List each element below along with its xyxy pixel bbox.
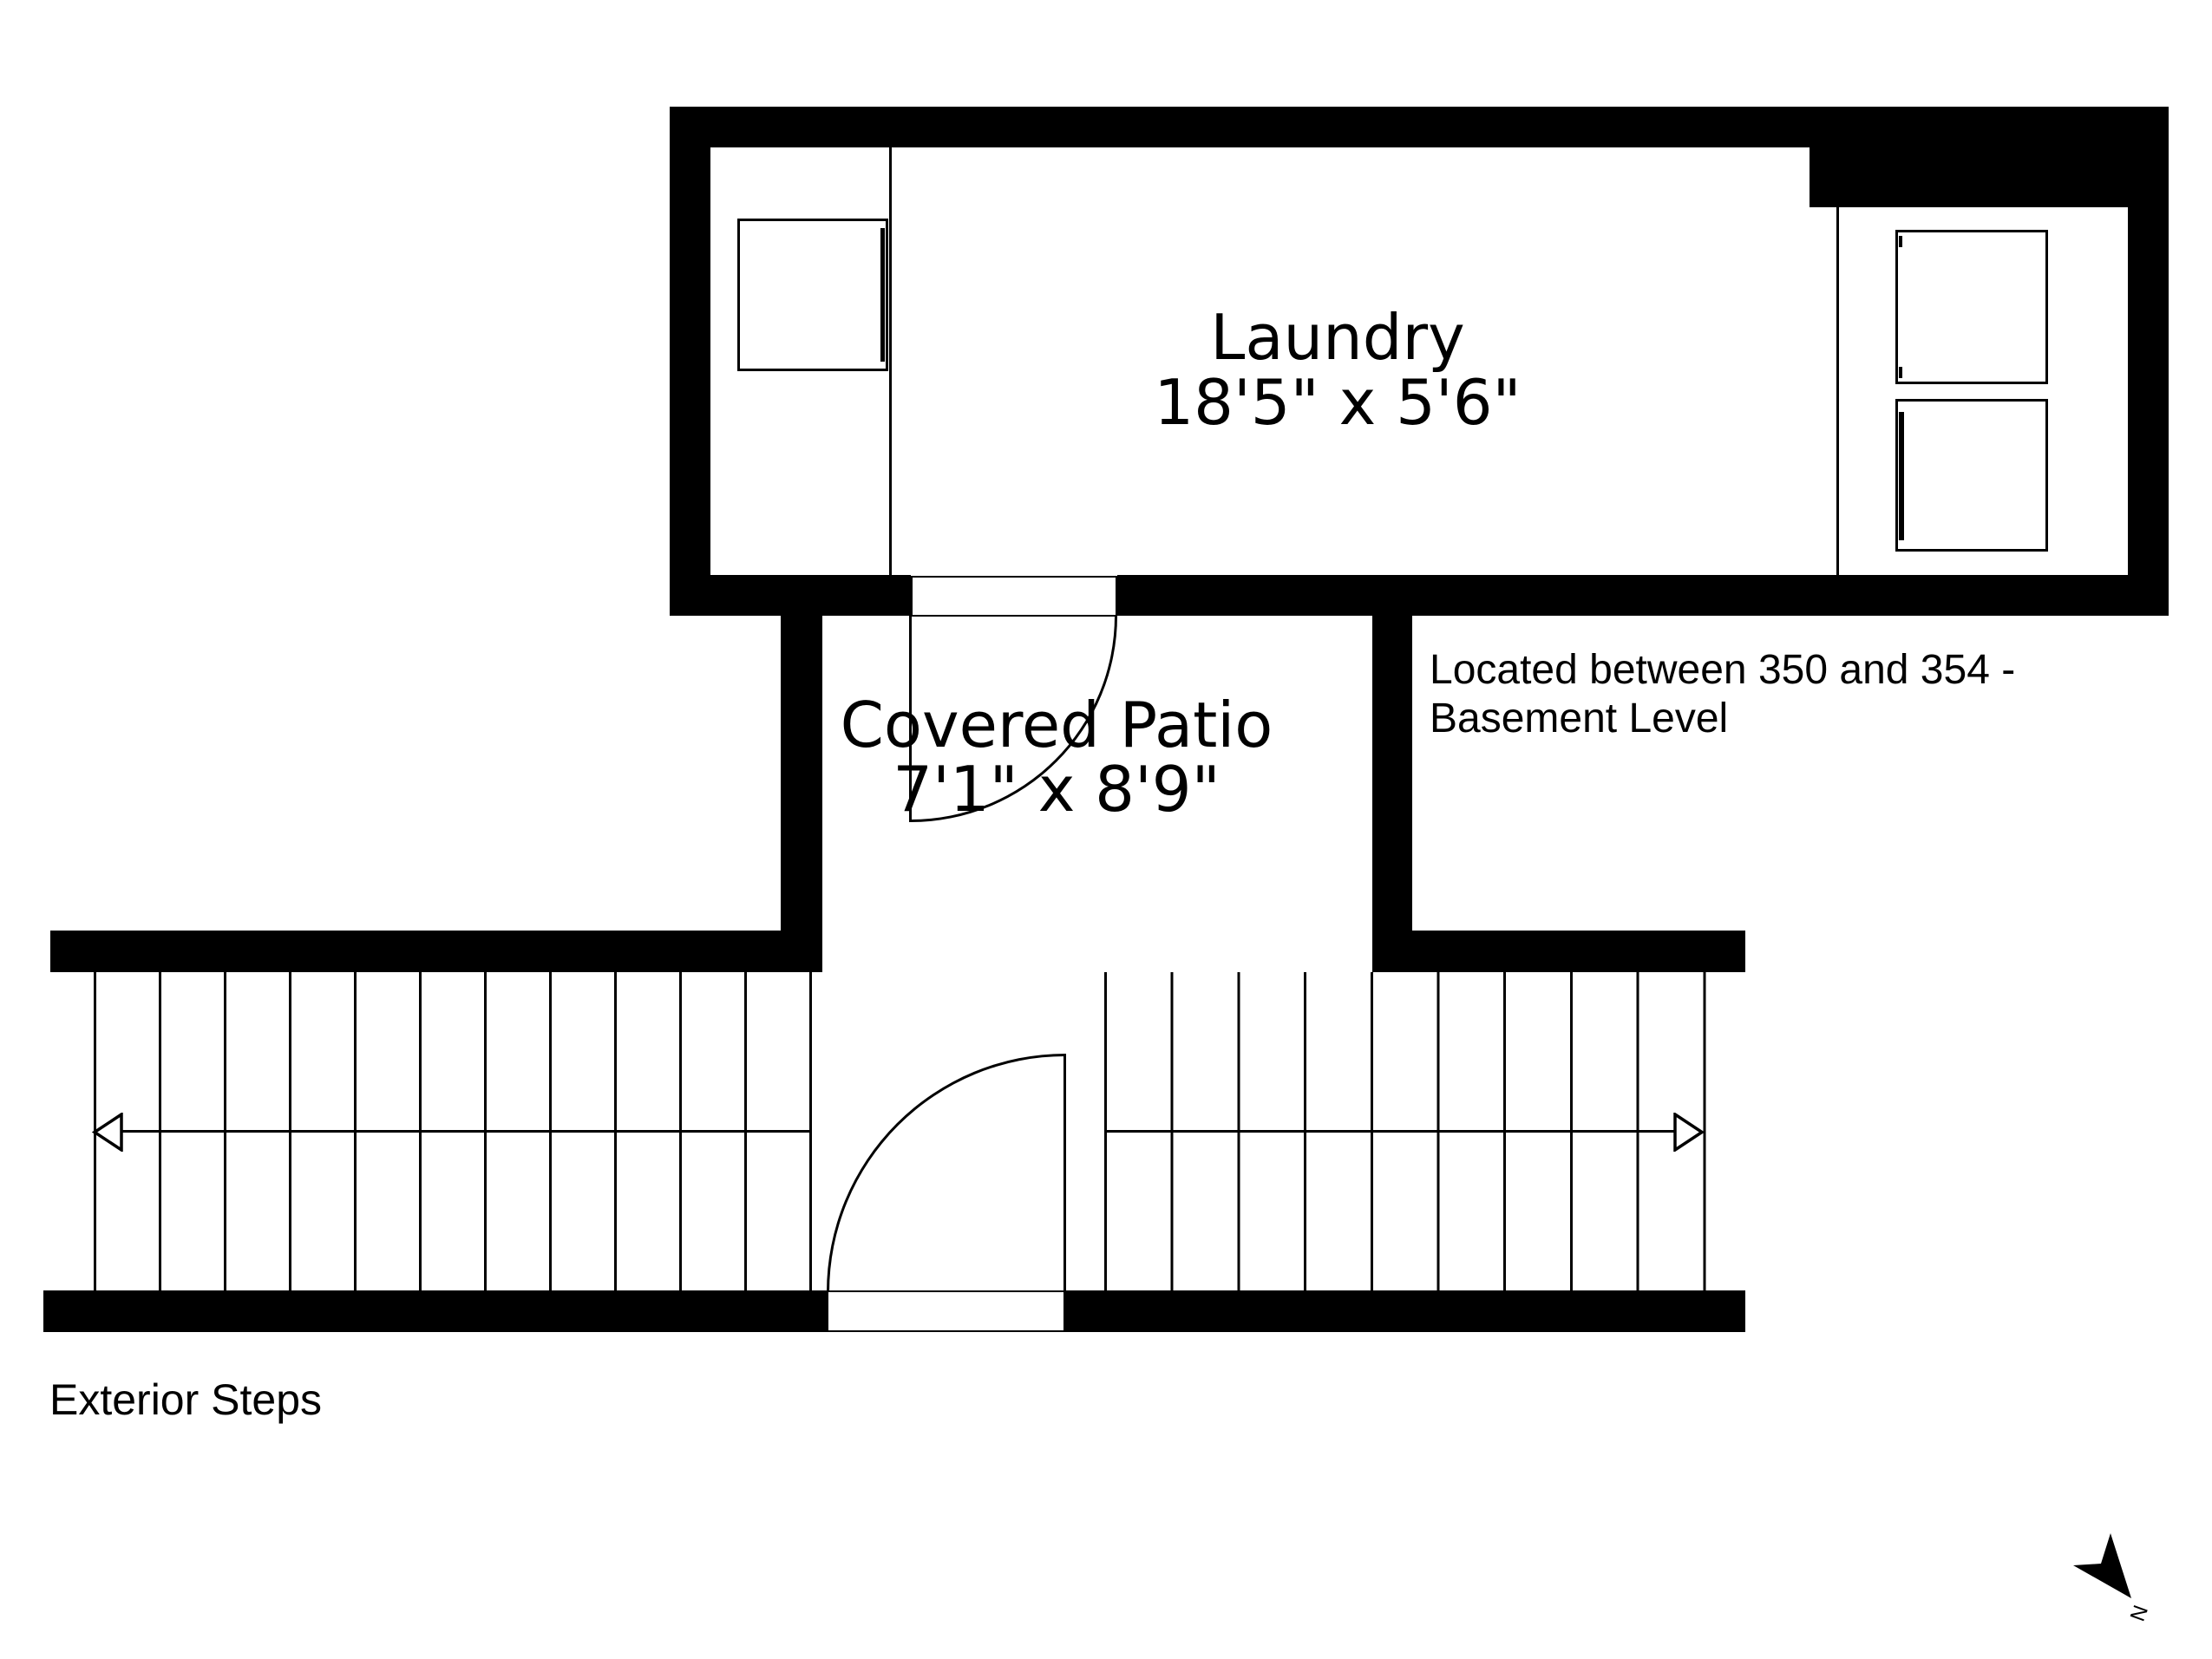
washer-hinge-tick [1899, 367, 1902, 378]
location-note: Located between 350 and 354 - Basement L… [1430, 646, 2015, 743]
laundry-fixture-box [737, 219, 888, 371]
entry-door-threshold [827, 1290, 1065, 1332]
laundry-door-frame [911, 576, 1117, 617]
dryer-door-edge [1899, 412, 1904, 540]
steps-band-top-left [50, 931, 822, 972]
dryer-box [1895, 399, 2048, 552]
washer-box [1895, 230, 2048, 384]
fixture-door-edge [880, 228, 885, 362]
laundry-right-divider [1836, 207, 1839, 575]
laundry-wall-left [670, 107, 710, 616]
patio-room-label: Covered Patio 7'1" x 8'9" [841, 693, 1273, 821]
laundry-room-label: Laundry 18'5" x 5'6" [1154, 305, 1521, 435]
stair-direction-line-left [120, 1130, 812, 1133]
patio-room-name: Covered Patio [841, 693, 1273, 757]
laundry-room-name: Laundry [1154, 305, 1521, 370]
patio-room-dimensions: 7'1" x 8'9" [841, 757, 1273, 821]
laundry-closet-divider [889, 147, 892, 575]
washer-hinge-tick [1899, 236, 1902, 247]
laundry-wall-bottom-right [1117, 575, 2169, 616]
north-arrow-icon [2069, 1529, 2137, 1602]
laundry-room-dimensions: 18'5" x 5'6" [1154, 370, 1521, 435]
exterior-steps-label: Exterior Steps [49, 1375, 322, 1424]
right-arrow-icon [1673, 1113, 1705, 1152]
entry-door-swing-arc [827, 1054, 1065, 1292]
location-note-line2: Basement Level [1430, 695, 2015, 743]
stair-direction-line-right [1104, 1130, 1679, 1133]
steps-band-top-right [1412, 931, 1745, 972]
floor-plan: Laundry 18'5" x 5'6" Covered Patio 7'1" … [0, 0, 2212, 1659]
location-note-line1: Located between 350 and 354 - [1430, 646, 2015, 695]
laundry-header-block [1810, 107, 2169, 207]
left-arrow-icon [91, 1113, 123, 1152]
patio-wall-right [1372, 616, 1412, 972]
laundry-wall-bottom-left [670, 575, 911, 616]
patio-wall-left [781, 616, 822, 972]
